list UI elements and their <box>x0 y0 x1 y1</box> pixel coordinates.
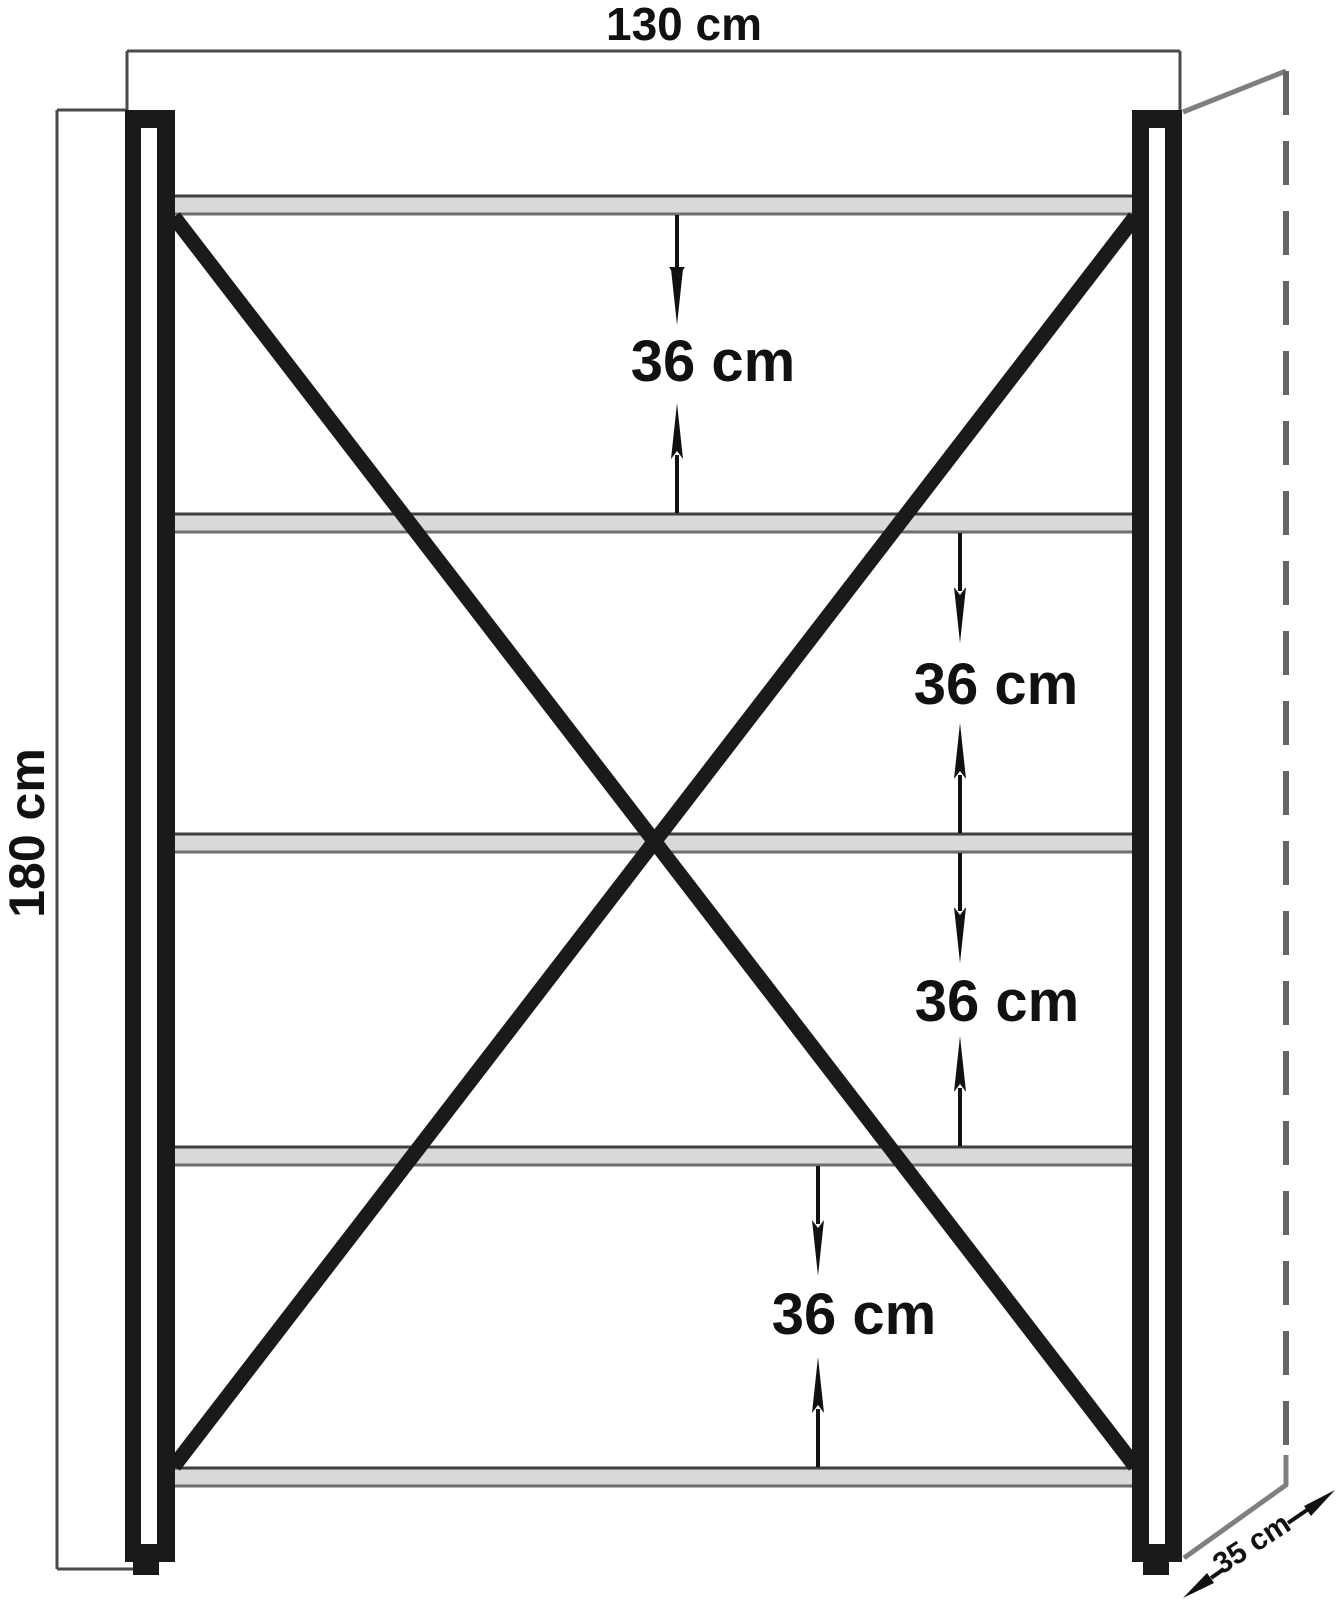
down-arrow-icon <box>954 907 966 963</box>
up-arrow-icon <box>954 1036 966 1092</box>
depth-arrow-lower-icon <box>1183 1573 1214 1598</box>
left-post-channel <box>141 128 157 1544</box>
shelf-1 <box>175 196 1132 214</box>
up-arrow-icon <box>812 1357 824 1413</box>
gap-dimension-4: 36 cm <box>772 1166 936 1467</box>
depth-dimension-label: 35 cm <box>1207 1507 1296 1581</box>
left-post <box>125 110 175 1575</box>
depth-arrow-upper-icon <box>1304 1490 1335 1516</box>
shelf-2 <box>175 514 1132 532</box>
gap-2-label: 36 cm <box>914 652 1078 717</box>
shelving-unit-dimension-drawing: 130 cm 180 cm <box>0 0 1338 1600</box>
width-dimension: 130 cm <box>127 0 1180 112</box>
gap-4-label: 36 cm <box>772 1282 936 1347</box>
gap-1-label: 36 cm <box>631 329 795 394</box>
height-dimension: 180 cm <box>0 110 133 1569</box>
diagram-canvas: 130 cm 180 cm <box>0 0 1338 1600</box>
right-post-channel <box>1149 128 1165 1544</box>
right-post <box>1132 110 1182 1575</box>
perspective-edge-top <box>1183 71 1286 112</box>
left-post-foot <box>133 1562 159 1575</box>
shelf-5 <box>175 1468 1132 1486</box>
up-arrow-icon <box>954 723 966 779</box>
shelf-4 <box>175 1147 1132 1165</box>
gap-dimension-1: 36 cm <box>631 215 795 513</box>
down-arrow-icon <box>954 587 966 643</box>
depth-perspective <box>1183 71 1286 1558</box>
gap-dimension-3: 36 cm <box>915 853 1079 1146</box>
right-post-foot <box>1143 1562 1169 1575</box>
gap-3-label: 36 cm <box>915 969 1079 1034</box>
width-dimension-label: 130 cm <box>606 0 762 50</box>
down-arrow-icon <box>812 1220 824 1276</box>
height-dimension-label: 180 cm <box>0 748 55 918</box>
up-arrow-icon <box>671 403 683 459</box>
gap-dimension-2: 36 cm <box>914 533 1078 833</box>
